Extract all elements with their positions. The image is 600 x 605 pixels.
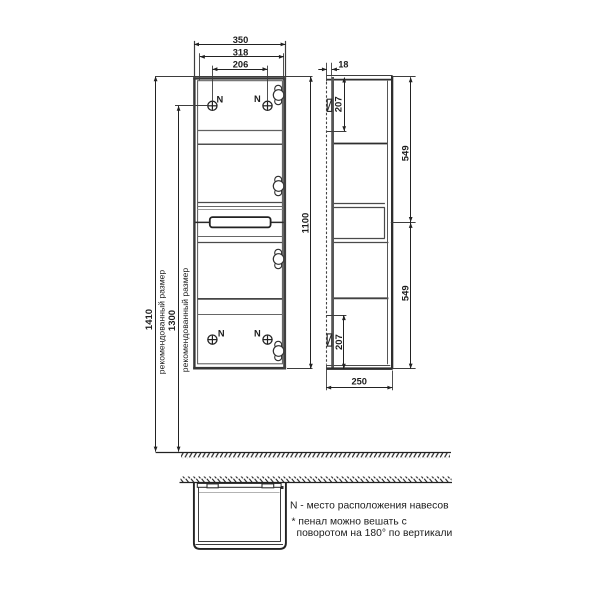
- svg-text:1300: 1300: [167, 310, 178, 331]
- svg-text:350: 350: [233, 35, 249, 45]
- svg-text:N: N: [254, 94, 261, 104]
- svg-text:N: N: [216, 94, 223, 104]
- svg-text:207: 207: [333, 96, 344, 112]
- svg-text:318: 318: [233, 47, 249, 57]
- svg-text:N: N: [254, 328, 261, 338]
- svg-text:N - место расположения навесов: N - место расположения навесов: [290, 500, 449, 511]
- svg-text:549: 549: [400, 285, 411, 301]
- svg-text:1410: 1410: [144, 309, 155, 330]
- svg-text:* пенал можно вешать с: * пенал можно вешать с: [292, 517, 407, 528]
- svg-text:250: 250: [351, 377, 367, 387]
- svg-text:N: N: [218, 328, 225, 338]
- svg-text:549: 549: [400, 145, 411, 161]
- svg-text:рекомендованный размер: рекомендованный размер: [180, 268, 190, 373]
- svg-text:поворотом на 180° по вертикали: поворотом на 180° по вертикали: [297, 528, 453, 539]
- svg-text:рекомендованный размер: рекомендованный размер: [156, 270, 166, 375]
- svg-text:1100: 1100: [301, 213, 312, 234]
- svg-text:207: 207: [334, 334, 345, 350]
- svg-text:18: 18: [338, 59, 348, 69]
- svg-text:206: 206: [233, 60, 249, 70]
